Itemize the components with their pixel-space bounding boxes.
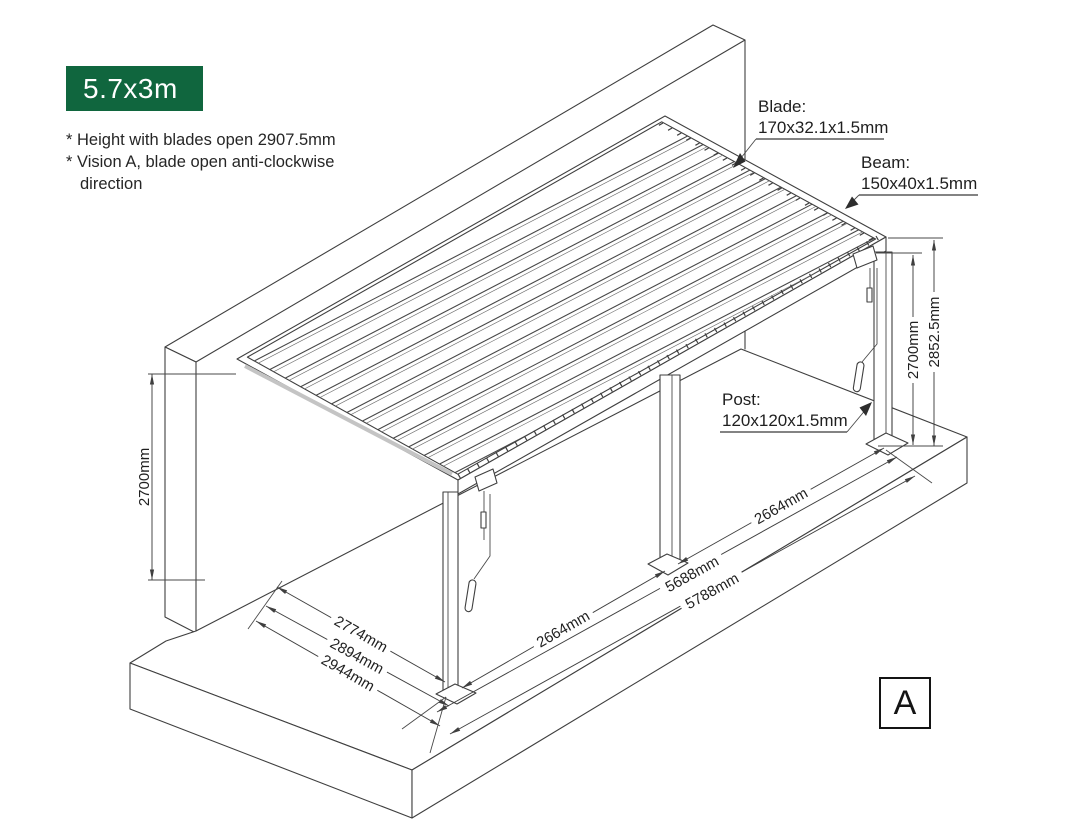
blade-callout-title: Blade: [758,97,806,116]
dimension-right-height-total: 2852.5mm [926,240,944,446]
crank-grip-right [853,361,865,392]
note-line-1: * Height with blades open 2907.5mm [66,129,336,151]
post-callout-title: Post: [722,390,761,409]
dim-arrow [911,255,915,266]
dim-arrow [150,570,154,581]
notes-block: * Height with blades open 2907.5mm * Vis… [66,129,336,195]
view-marker-label: A [894,684,917,723]
dim-arrow [932,240,936,251]
wall-left-end-face [165,347,196,633]
cable-connector-right [867,288,872,302]
callout-beam: Beam: 150x40x1.5mm [845,153,978,209]
pergola-spec-diagram: 2700mm2700mm2852.5mm2774mm2894mm2944mm26… [0,0,1080,831]
note-line-3: direction [66,173,336,195]
beam-callout-size: 150x40x1.5mm [861,174,977,193]
post-front-left [443,492,458,694]
view-marker-box: A [879,677,931,729]
size-badge-label: 5.7x3m [83,73,178,105]
size-badge: 5.7x3m [66,66,203,111]
beam-leader-arrow [845,197,859,210]
post-callout-size: 120x120x1.5mm [722,411,848,430]
beam-callout-title: Beam: [861,153,910,172]
right-motor-and-crank [853,246,877,392]
dimension-left-height: 2700mm [136,374,154,580]
blade-callout-size: 170x32.1x1.5mm [758,118,888,137]
cable-connector-left [481,512,486,528]
dim-label: 2700mm [905,321,922,379]
dim-label: 2852.5mm [926,297,943,368]
dim-arrow [150,374,154,385]
note-line-2: * Vision A, blade open anti-clockwise [66,151,336,173]
post-front-middle [660,375,680,562]
dim-label: 2700mm [136,448,153,506]
